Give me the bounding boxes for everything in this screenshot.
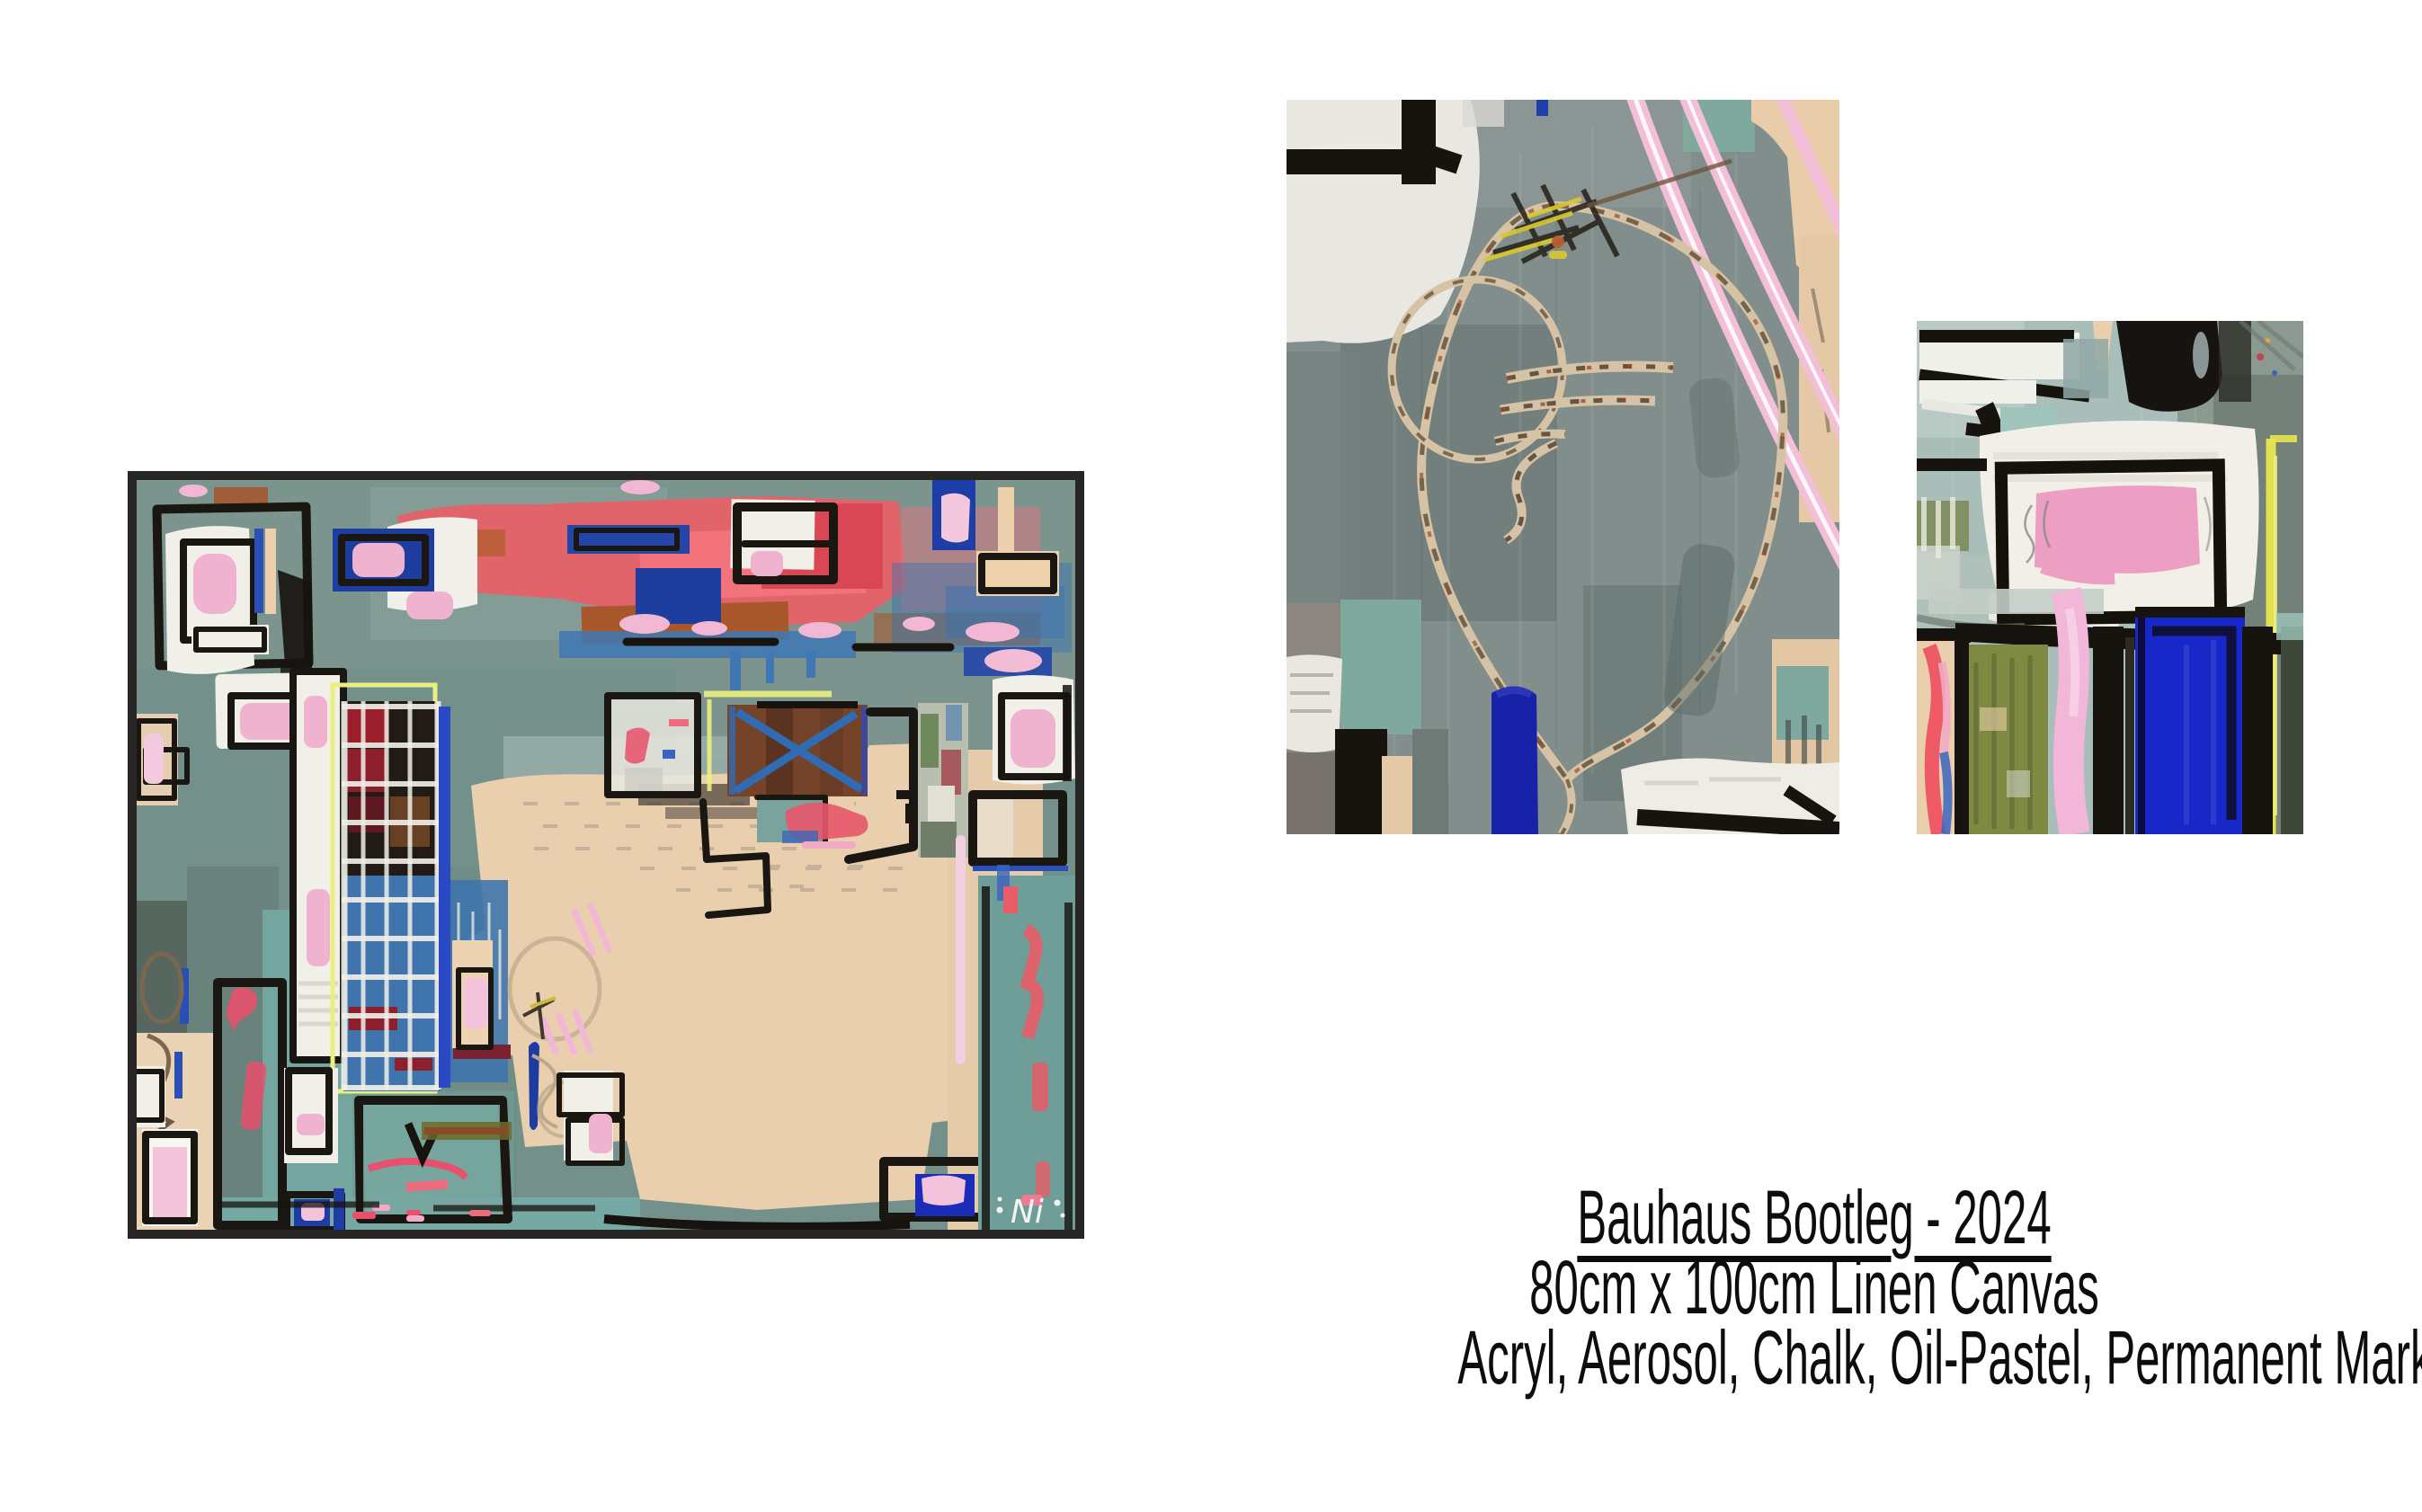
main-artwork-frame: Ni	[128, 471, 1084, 1239]
artwork-media: Acryl, Aerosol, Chalk, Oil-Pastel, Perma…	[1457, 1320, 2170, 1395]
detail-image-right	[1917, 321, 2303, 834]
portfolio-page: { "page": { "background_color": "#ffffff…	[0, 0, 2422, 1512]
svg-text:Ni: Ni	[1011, 1194, 1044, 1230]
detail-center-image	[1287, 100, 1839, 834]
detail-right-image	[1917, 321, 2303, 834]
detail-image-center	[1287, 100, 1839, 834]
artwork-dimensions: 80cm x 100cm Linen Canvas	[1457, 1250, 2170, 1325]
artwork-title-year: Bauhaus Bootleg - 2024	[1457, 1179, 2170, 1255]
main-artwork-image: Ni	[137, 480, 1075, 1230]
artwork-caption: Bauhaus Bootleg - 2024 80cm x 100cm Line…	[1205, 1170, 2422, 1440]
